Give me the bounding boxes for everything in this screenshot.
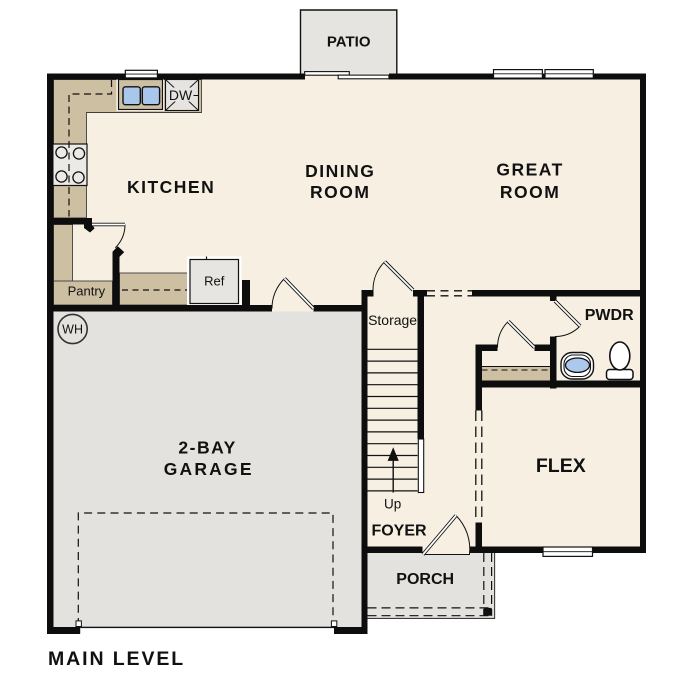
svg-text:Storage: Storage <box>368 312 417 328</box>
svg-text:FOYER: FOYER <box>371 522 427 539</box>
svg-text:FLEX: FLEX <box>536 455 586 477</box>
svg-text:GARAGE: GARAGE <box>164 459 254 479</box>
svg-text:2-BAY: 2-BAY <box>178 437 236 457</box>
svg-text:MAIN LEVEL: MAIN LEVEL <box>48 648 185 670</box>
svg-text:PORCH: PORCH <box>396 571 454 588</box>
svg-text:DW: DW <box>169 87 193 103</box>
svg-text:GREAT: GREAT <box>496 160 563 180</box>
svg-text:Up: Up <box>384 497 401 512</box>
svg-text:KITCHEN: KITCHEN <box>127 177 215 197</box>
svg-text:ROOM: ROOM <box>310 182 370 202</box>
svg-text:Pantry: Pantry <box>68 284 106 299</box>
svg-text:WH: WH <box>62 323 83 337</box>
svg-text:Ref: Ref <box>204 273 225 288</box>
svg-text:DINING: DINING <box>305 161 375 181</box>
svg-text:ROOM: ROOM <box>500 182 560 202</box>
svg-text:PATIO: PATIO <box>327 33 371 50</box>
svg-text:PWDR: PWDR <box>585 307 634 324</box>
